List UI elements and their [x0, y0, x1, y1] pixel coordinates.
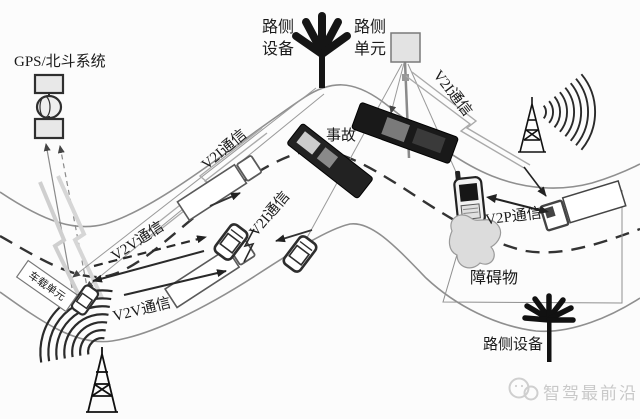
gps-satellite-icon	[35, 75, 63, 138]
radio-waves-right-icon	[544, 74, 595, 150]
comm-tower-right-icon	[518, 97, 546, 152]
rsu-to-accident-link	[391, 63, 404, 113]
v2p-label-text: V2P通信	[484, 205, 542, 229]
truck-lower-lane	[165, 238, 256, 308]
roadside-unit-label-line2: 单元	[354, 40, 386, 58]
gps-system-label: GPS/北斗系统	[14, 53, 106, 70]
roadside-unit-label-line1: 路侧	[354, 18, 386, 36]
accident-truck-a	[351, 102, 458, 164]
v2v-label-upper-text: V2V通信	[108, 218, 167, 264]
obstacle-label: 障碍物	[470, 269, 518, 287]
v2v-label-lower: V2V通信	[111, 294, 173, 325]
v2i-label-middle: V2I通信	[246, 188, 293, 240]
truck-upper-lane	[177, 154, 262, 220]
comm-tower-left-icon	[86, 347, 118, 412]
rsu-to-obu-link-1	[73, 88, 316, 277]
diagram-canvas: GPS/北斗系统 路侧 设备 路侧 单元	[0, 0, 640, 419]
accident-label: 事故	[326, 127, 356, 144]
v2x-scene-diagram: GPS/北斗系统 路侧 设备 路侧 单元	[0, 0, 640, 419]
watermark-text: 智驾最前沿	[543, 384, 638, 403]
v2v-label-upper: V2V通信	[108, 218, 167, 264]
v2i-lightning-to-truck-arrow	[524, 167, 546, 196]
roadside-equipment-top-label-line2: 设备	[262, 40, 294, 58]
v2p-arrowhead-left	[486, 194, 497, 203]
v2p-label: V2P通信	[484, 205, 542, 229]
v2i-label-middle-text: V2I通信	[246, 188, 293, 240]
watermark-logo-icon	[510, 379, 538, 400]
roadside-equipment-bottom-label: 路侧设备	[483, 336, 543, 353]
gps-uplink-solid-arrow	[46, 144, 72, 288]
roadside-tree-top-icon	[296, 16, 347, 88]
roadside-equipment-top-label-line1: 路侧	[262, 18, 294, 36]
v2v-label-lower-text: V2V通信	[111, 294, 173, 325]
